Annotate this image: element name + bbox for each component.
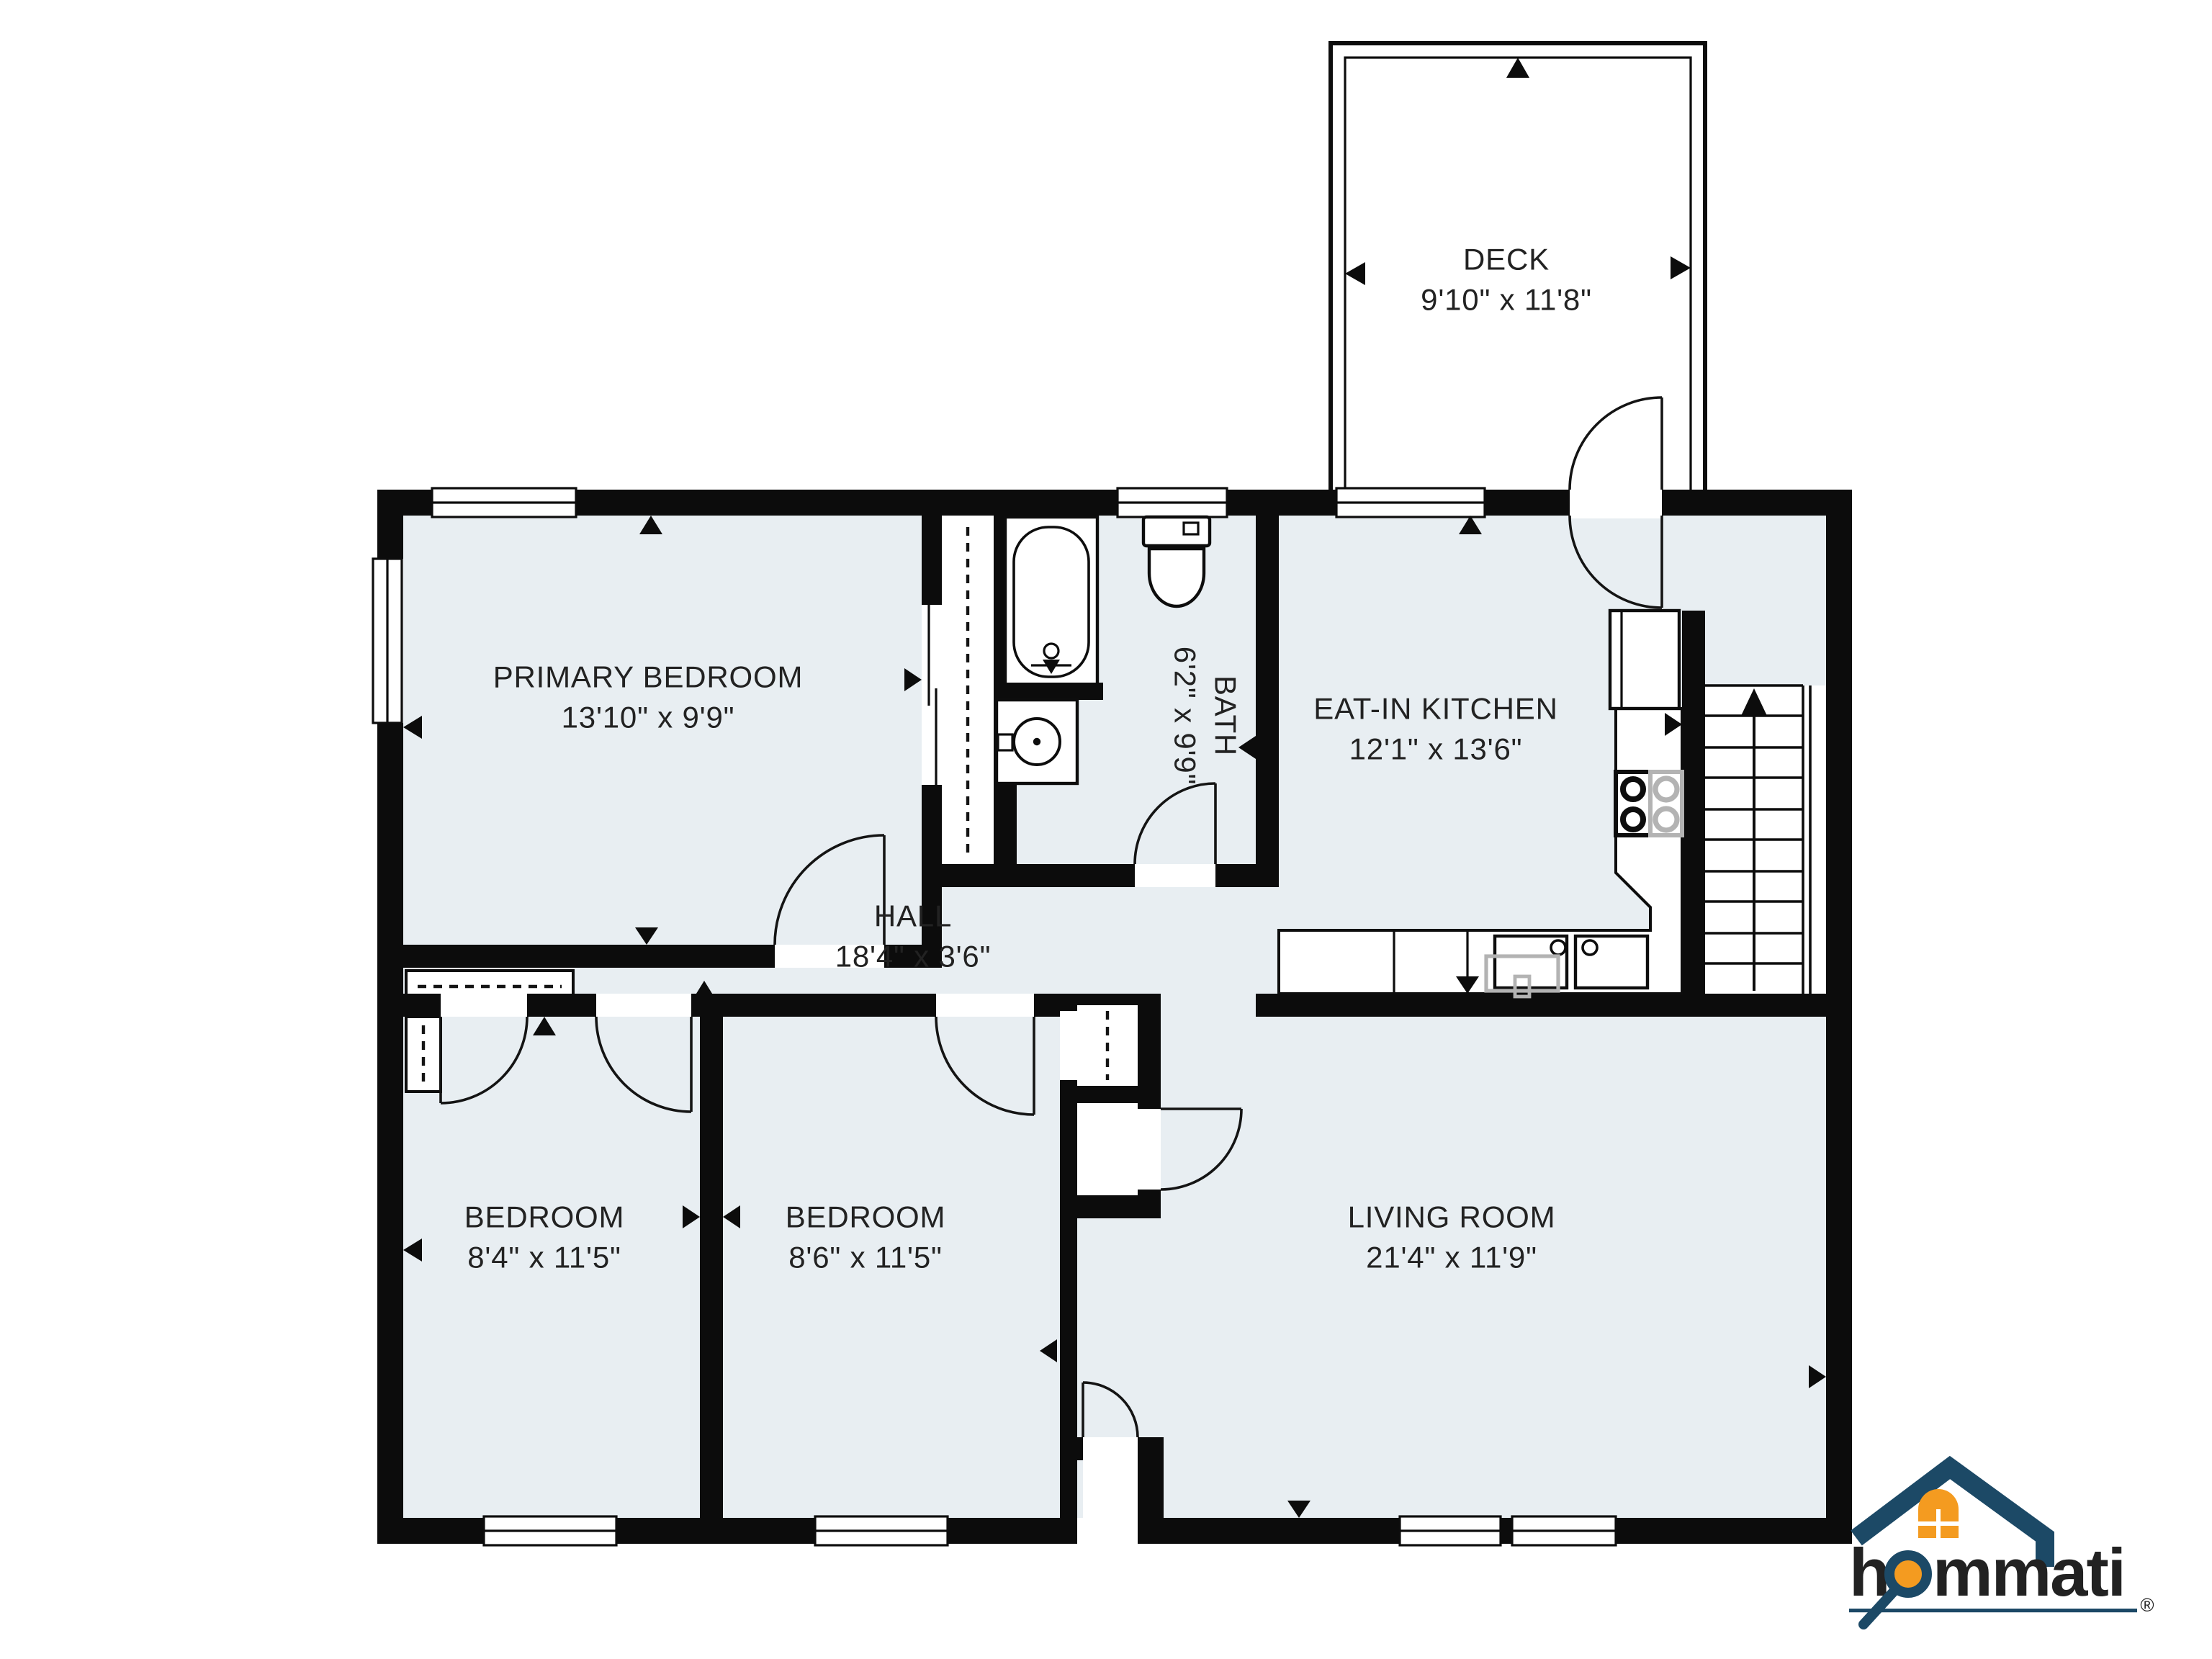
svg-text:6'2" x 9'9": 6'2" x 9'9" xyxy=(1169,647,1202,785)
logo-text: mmati xyxy=(1933,1534,2125,1610)
svg-text:LIVING ROOM: LIVING ROOM xyxy=(1348,1200,1556,1234)
svg-text:8'4" x 11'5": 8'4" x 11'5" xyxy=(467,1241,621,1274)
hommati-logo: h mmati ® xyxy=(1849,1467,2154,1624)
svg-text:EAT-IN KITCHEN: EAT-IN KITCHEN xyxy=(1313,692,1557,726)
entry-recess xyxy=(1083,1460,1138,1544)
bathtub xyxy=(1005,517,1097,687)
svg-text:13'10" x 9'9": 13'10" x 9'9" xyxy=(562,701,735,734)
svg-text:12'1" x 13'6": 12'1" x 13'6" xyxy=(1349,732,1523,766)
refrigerator xyxy=(1610,611,1679,709)
magnifier-icon xyxy=(1889,1555,1927,1593)
tub-partition-wall xyxy=(994,683,1103,700)
svg-text:BEDROOM: BEDROOM xyxy=(464,1200,625,1234)
svg-text:BEDROOM: BEDROOM xyxy=(786,1200,946,1234)
svg-text:8'6" x 11'5": 8'6" x 11'5" xyxy=(788,1241,942,1274)
stove xyxy=(1616,772,1682,835)
coat-closet xyxy=(1077,1103,1138,1195)
svg-text:HALL: HALL xyxy=(874,899,952,933)
svg-text:BATH: BATH xyxy=(1209,675,1243,756)
svg-text:21'4" x 11'9": 21'4" x 11'9" xyxy=(1366,1241,1537,1274)
svg-text:PRIMARY BEDROOM: PRIMARY BEDROOM xyxy=(493,660,804,694)
floor-plan-canvas: DECK 9'10" x 11'8" PRIMARY BEDROOM 13'10… xyxy=(0,0,2212,1659)
svg-text:9'10" x 11'8": 9'10" x 11'8" xyxy=(1421,283,1592,317)
svg-text:18'4" x 3'6": 18'4" x 3'6" xyxy=(835,940,992,974)
svg-text:DECK: DECK xyxy=(1463,243,1550,276)
toilet xyxy=(1143,517,1210,606)
registered-mark: ® xyxy=(2140,1594,2154,1616)
sink-vanity xyxy=(997,700,1077,783)
logo-underline xyxy=(1849,1609,2137,1612)
